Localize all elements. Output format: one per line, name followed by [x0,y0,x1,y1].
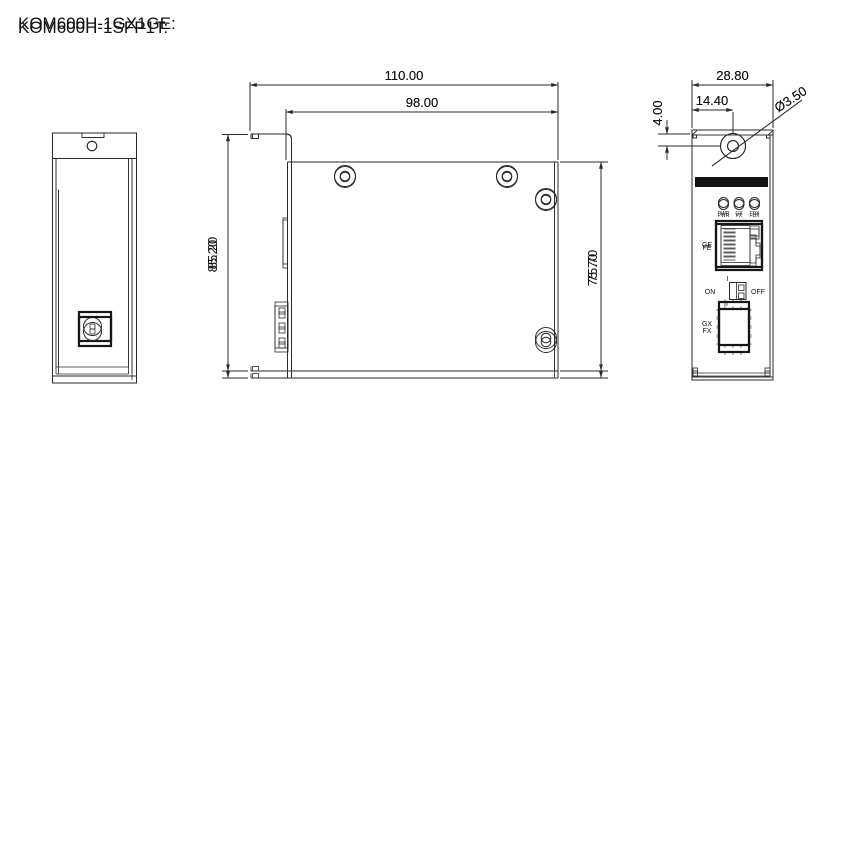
din-clip-tab [82,133,104,138]
rj45-label: FE [703,245,712,252]
led-fdx [750,200,760,210]
section-sfp1t: KOM600H-1SFP1T: 110.00 98.00 [0,0,846,429]
led-indicators: PWR FX FDX [718,200,761,220]
switch-off-label: OFF [751,289,765,296]
drawing-canvas: KOM600H-1GX1GE: 110.00 98.00 [0,0,846,859]
dim-hole-center: 14.40 [692,93,733,133]
front-view: 110.00 98.00 85.20 75.70 [205,68,608,378]
svg-text:110.00: 110.00 [385,68,424,83]
svg-text:FX: FX [736,213,743,219]
rj45-port: FE [703,224,762,270]
svg-text:85.20: 85.20 [205,240,220,273]
model-title: KOM600H-1SFP1T: [18,18,168,37]
svg-text:4.00: 4.00 [650,100,665,125]
switch-on-label: ON [705,289,716,296]
chassis-outline [251,134,558,378]
svg-text:Ø3.50: Ø3.50 [772,83,810,115]
led-pwr [719,200,729,210]
side-view [53,133,137,383]
dim-body-width: 98.00 [286,95,558,160]
sfp-label: FX [703,328,712,335]
dim-overall-width: 110.00 [250,68,558,160]
panel-body [692,130,773,380]
screw-holes [335,167,557,353]
svg-text:PWR: PWR [718,213,730,219]
mount-hole [87,141,97,151]
svg-text:98.00: 98.00 [406,95,439,110]
sfp-port: FX [703,307,752,355]
dc-power-jack [79,317,111,346]
power-switch: I ON OFF II [705,276,765,308]
led-fx [734,200,744,210]
svg-text:FDX: FDX [750,213,761,219]
switch-position-i-label: I [727,276,729,283]
din-slot [283,220,288,268]
terminal-connector [275,306,288,352]
dim-overall-height: 85.20 [205,135,248,379]
svg-text:75.70: 75.70 [585,254,600,287]
panel-view: 28.80 14.40 4.00 Ø3.50 [650,68,809,380]
svg-text:14.40: 14.40 [696,93,729,108]
svg-text:28.80: 28.80 [716,68,749,83]
din-rail-marker [695,178,768,187]
panel-mount-hole [721,134,746,159]
dim-body-height: 75.70 [560,162,608,378]
